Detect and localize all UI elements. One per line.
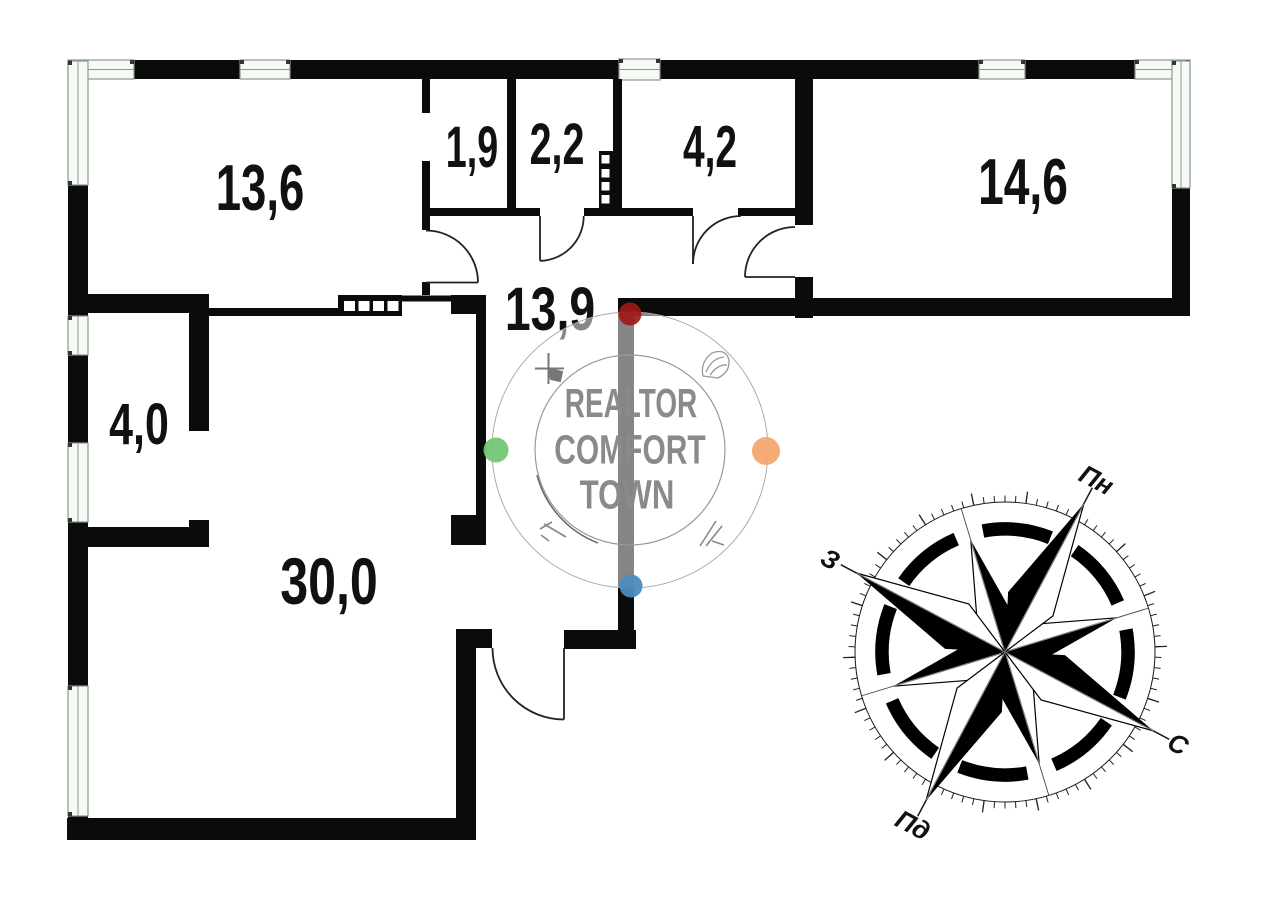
svg-text:13,6: 13,6 xyxy=(216,151,305,224)
svg-text:4,2: 4,2 xyxy=(683,114,737,180)
svg-text:COMFORT: COMFORT xyxy=(554,427,706,472)
svg-text:TOWN: TOWN xyxy=(580,472,675,518)
svg-text:30,0: 30,0 xyxy=(280,545,378,618)
svg-text:1,9: 1,9 xyxy=(446,116,498,180)
svg-text:14,6: 14,6 xyxy=(978,145,1068,218)
svg-text:REALTOR: REALTOR xyxy=(565,382,697,426)
svg-text:4,0: 4,0 xyxy=(109,392,169,457)
svg-text:2,2: 2,2 xyxy=(530,111,585,176)
